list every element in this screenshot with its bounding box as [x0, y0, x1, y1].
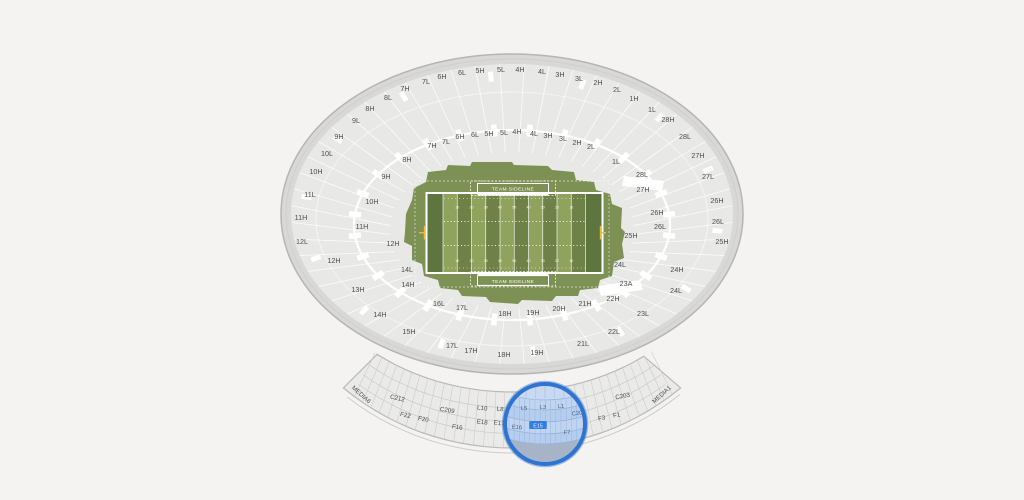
- section-label-27L[interactable]: 27L: [702, 172, 714, 181]
- yard-number: 40: [527, 259, 531, 263]
- section-label-7L[interactable]: 7L: [422, 77, 430, 86]
- section-label-19H[interactable]: 19H: [530, 348, 543, 357]
- section-label-L10[interactable]: L10: [477, 404, 489, 412]
- section-label-28H[interactable]: 28H: [661, 115, 674, 124]
- section-label-18H[interactable]: 18H: [498, 309, 511, 318]
- section-label-17L[interactable]: 17L: [456, 303, 468, 312]
- yard-number: 20: [470, 259, 474, 263]
- section-label-8H[interactable]: 8H: [402, 155, 411, 164]
- yard-number: 10: [455, 206, 459, 210]
- section-label-17L[interactable]: 17L: [446, 341, 458, 350]
- section-label-12H[interactable]: 12H: [386, 239, 399, 248]
- section-label-4L[interactable]: 4L: [538, 67, 546, 76]
- yard-number: 20: [470, 206, 474, 210]
- section-label-5H[interactable]: 5H: [475, 66, 484, 75]
- yard-number: 10: [569, 206, 573, 210]
- yard-number: 40: [527, 206, 531, 210]
- section-label-11H[interactable]: 11H: [356, 222, 369, 231]
- section-label-1H[interactable]: 1H: [629, 94, 638, 103]
- section-label-24L[interactable]: 24L: [670, 286, 682, 295]
- section-label-4H[interactable]: 4H: [515, 65, 524, 74]
- section-label-1L[interactable]: 1L: [648, 105, 656, 114]
- section-label-21H[interactable]: 21H: [578, 299, 591, 308]
- section-label-10L[interactable]: 10L: [321, 149, 333, 158]
- section-label-28L[interactable]: 28L: [636, 170, 648, 179]
- section-label-3L[interactable]: 3L: [559, 134, 567, 143]
- section-label-2H[interactable]: 2H: [572, 138, 581, 147]
- section-label-10H[interactable]: 10H: [365, 197, 378, 206]
- section-label-14L[interactable]: 14L: [401, 265, 413, 274]
- section-label-15H[interactable]: 15H: [402, 327, 415, 336]
- team-sideline-label: TEAM SIDELINE: [492, 279, 535, 285]
- section-label-26H[interactable]: 26H: [650, 208, 663, 217]
- section-label-17H[interactable]: 17H: [464, 346, 477, 355]
- section-label-5L[interactable]: 5L: [497, 65, 505, 74]
- yard-number: 40: [498, 259, 502, 263]
- section-label-7H[interactable]: 7H: [427, 141, 436, 150]
- section-label-26H[interactable]: 26H: [710, 196, 723, 205]
- section-label-7L[interactable]: 7L: [442, 137, 450, 146]
- magnifier-lens[interactable]: E15L5L3L1C20E16F7: [503, 382, 588, 467]
- yard-number: 50: [512, 259, 516, 263]
- section-label-12H[interactable]: 12H: [327, 256, 340, 265]
- section-label-2L[interactable]: 2L: [587, 142, 595, 151]
- section-label-20H[interactable]: 20H: [552, 304, 565, 313]
- section-label-27H[interactable]: 27H: [691, 151, 704, 160]
- section-label-4H[interactable]: 4H: [512, 127, 521, 136]
- section-label-11H[interactable]: 11H: [295, 213, 308, 222]
- section-label-5H[interactable]: 5H: [484, 129, 493, 138]
- section-label-19H[interactable]: 19H: [526, 308, 539, 317]
- section-label-14H[interactable]: 14H: [401, 280, 414, 289]
- section-label-3H[interactable]: 3H: [543, 131, 552, 140]
- yard-number: 40: [498, 206, 502, 210]
- section-label-1L[interactable]: 1L: [612, 157, 620, 166]
- section-label-9L[interactable]: 9L: [352, 116, 360, 125]
- yard-number: 10: [455, 259, 459, 263]
- section-label-4L[interactable]: 4L: [530, 129, 538, 138]
- section-label-2L[interactable]: 2L: [613, 85, 621, 94]
- yard-number: 10: [569, 259, 573, 263]
- section-label-25H[interactable]: 25H: [624, 231, 637, 240]
- section-label-16L[interactable]: 16L: [433, 299, 445, 308]
- section-label-9H[interactable]: 9H: [381, 172, 390, 181]
- section-label-14H[interactable]: 14H: [373, 310, 386, 319]
- yard-number: 30: [541, 259, 545, 263]
- section-label-3H[interactable]: 3H: [555, 70, 564, 79]
- section-label-L8[interactable]: L8: [496, 406, 504, 414]
- section-label-8H[interactable]: 8H: [365, 104, 374, 113]
- section-label-23L[interactable]: 23L: [637, 309, 649, 318]
- section-label-25H[interactable]: 25H: [715, 237, 728, 246]
- section-label-27H[interactable]: 27H: [636, 185, 649, 194]
- section-label-24L[interactable]: 24L: [614, 260, 626, 269]
- section-label-22H[interactable]: 22H: [606, 294, 619, 303]
- section-label-6L[interactable]: 6L: [471, 130, 479, 139]
- section-label-13H[interactable]: 13H: [351, 285, 364, 294]
- yard-number: 30: [541, 206, 545, 210]
- section-label-28L[interactable]: 28L: [679, 132, 691, 141]
- section-label-8L[interactable]: 8L: [384, 93, 392, 102]
- yard-number: 50: [512, 206, 516, 210]
- section-label-2H[interactable]: 2H: [593, 78, 602, 87]
- section-label-23A[interactable]: 23A: [620, 279, 633, 288]
- seat-map-canvas[interactable]: 101020203030404050504040303020201010TEAM…: [0, 0, 1024, 500]
- section-label-3L[interactable]: 3L: [575, 74, 583, 83]
- section-label-5L[interactable]: 5L: [500, 128, 508, 137]
- yard-number: 30: [484, 206, 488, 210]
- section-label-18H[interactable]: 18H: [497, 350, 510, 359]
- yard-number: 30: [484, 259, 488, 263]
- section-label-10H[interactable]: 10H: [309, 167, 322, 176]
- section-label-26L[interactable]: 26L: [712, 217, 724, 226]
- section-label-11L[interactable]: 11L: [304, 190, 315, 199]
- section-label-7H[interactable]: 7H: [400, 84, 409, 93]
- section-label-24H[interactable]: 24H: [670, 265, 683, 274]
- section-label-12L[interactable]: 12L: [296, 237, 308, 246]
- section-label-6H[interactable]: 6H: [437, 72, 446, 81]
- section-label-9H[interactable]: 9H: [334, 132, 343, 141]
- stadium-seat-map[interactable]: 101020203030404050504040303020201010TEAM…: [0, 0, 1024, 500]
- yard-number: 20: [555, 259, 559, 263]
- yard-number: 20: [555, 206, 559, 210]
- section-label-26L[interactable]: 26L: [654, 222, 666, 231]
- section-label-E18[interactable]: E18: [476, 418, 488, 426]
- section-label-21L[interactable]: 21L: [577, 339, 589, 348]
- section-label-6H[interactable]: 6H: [455, 132, 464, 141]
- section-label-22L[interactable]: 22L: [608, 327, 620, 336]
- team-sideline-label: TEAM SIDELINE: [492, 187, 535, 193]
- tunnel-mark: [488, 71, 494, 81]
- section-label-6L[interactable]: 6L: [458, 68, 466, 77]
